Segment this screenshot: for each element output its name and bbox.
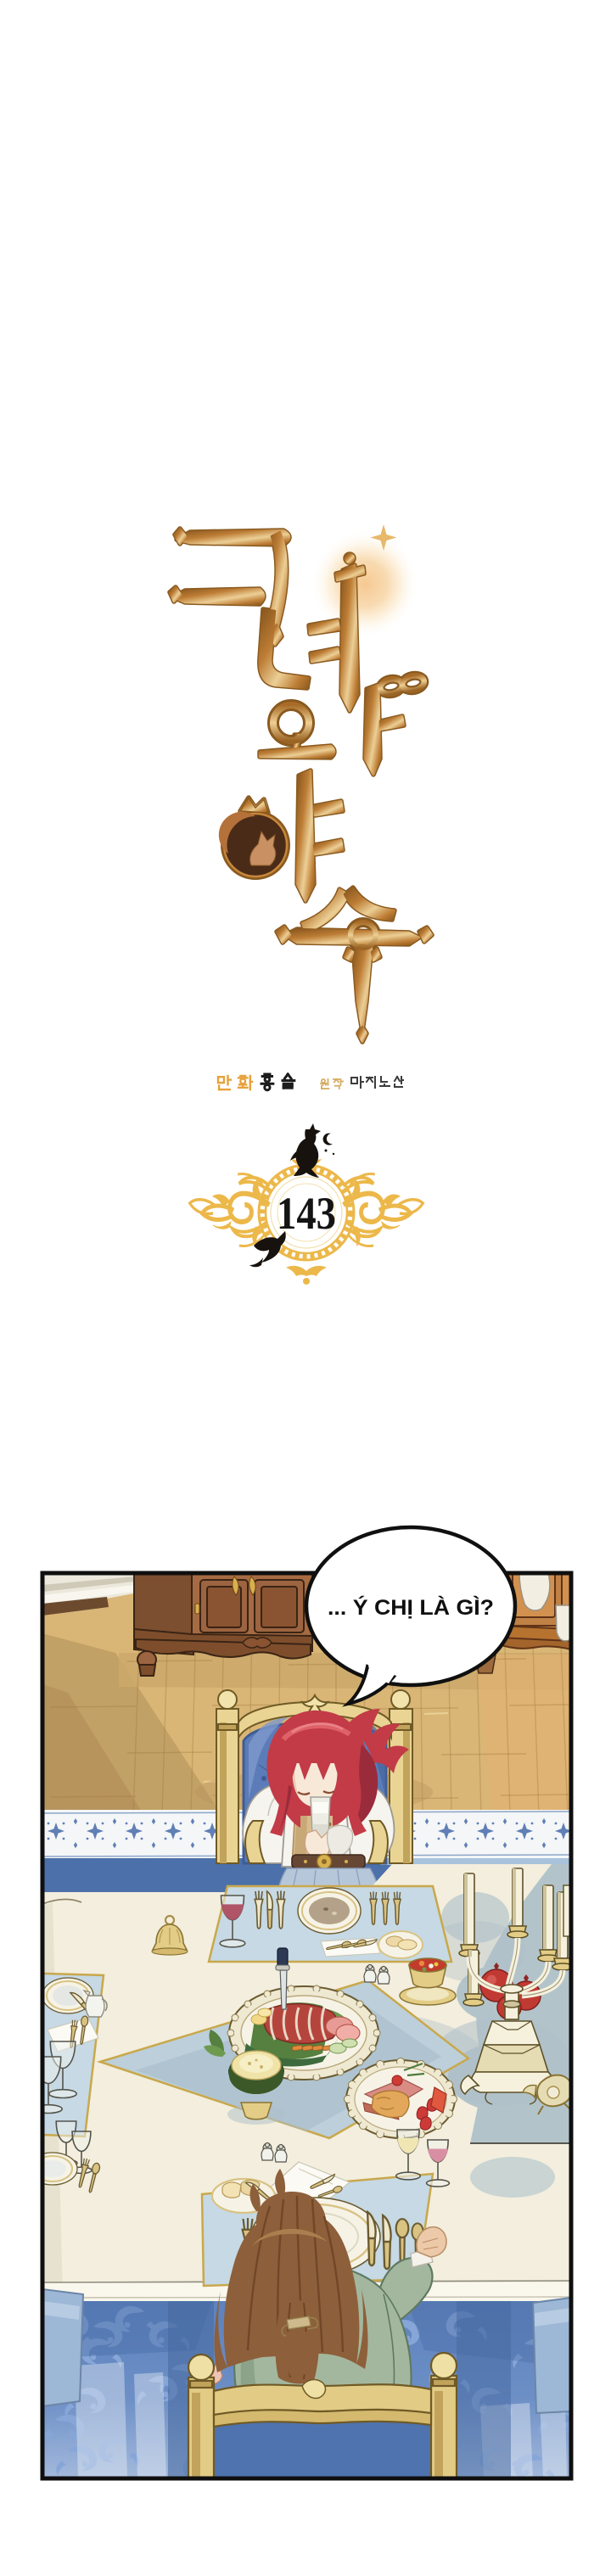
svg-text:... Ý CHỊ LÀ GÌ?: ... Ý CHỊ LÀ GÌ? bbox=[328, 1594, 494, 1620]
svg-text:143: 143 bbox=[277, 1188, 336, 1239]
